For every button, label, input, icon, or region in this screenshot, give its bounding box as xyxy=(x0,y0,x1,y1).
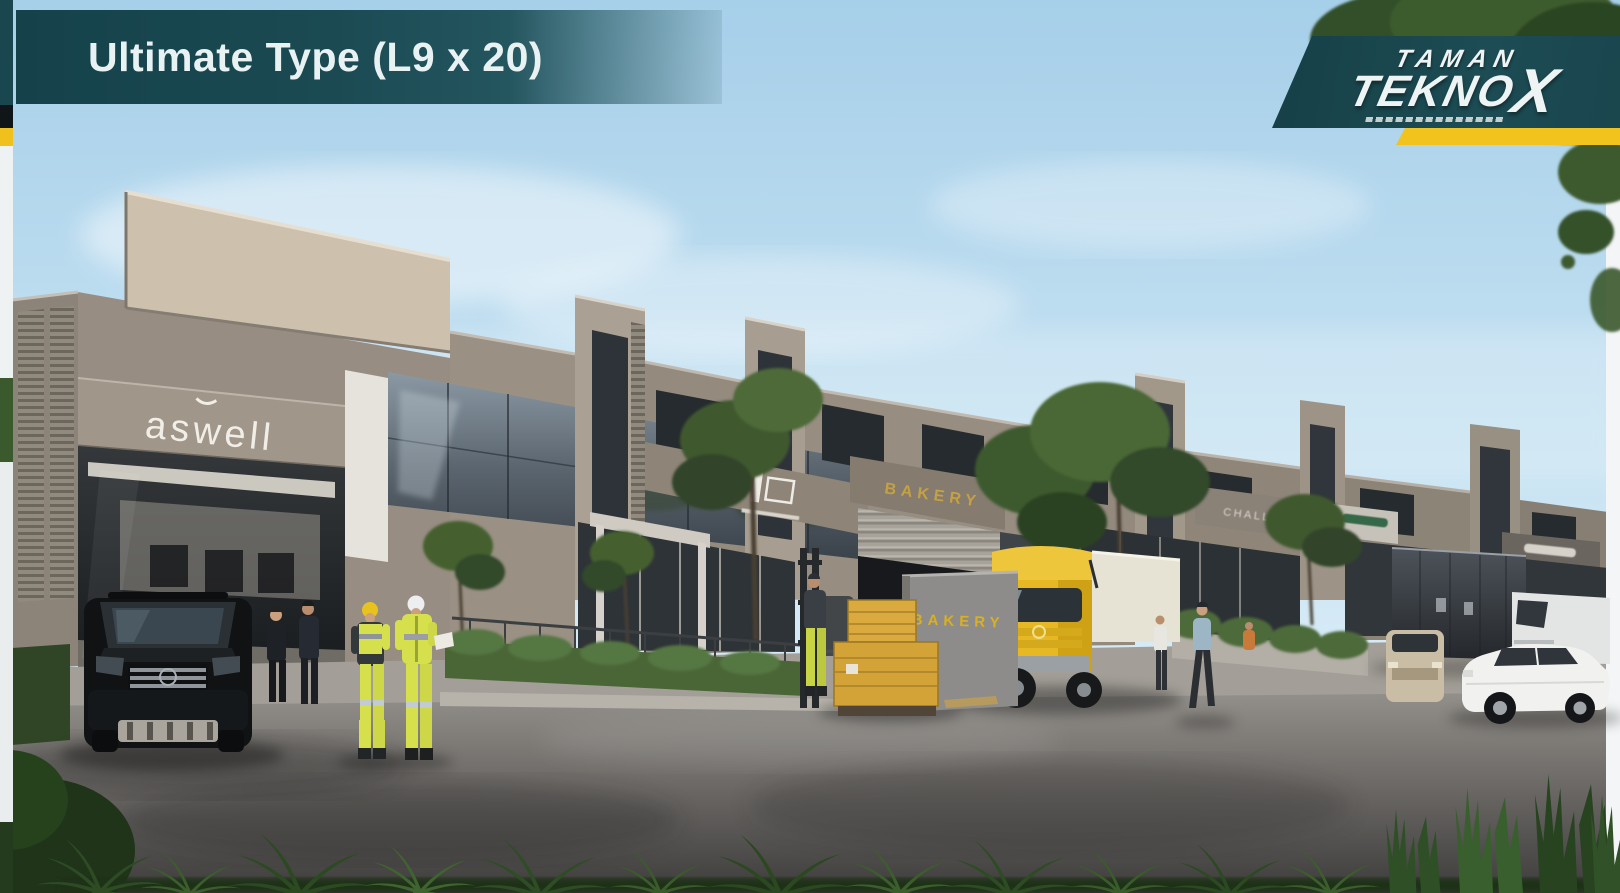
pallet xyxy=(838,706,936,716)
logo-text: TAMAN TEKNOX xyxy=(1325,45,1613,122)
bakery-wall-sign: BAKERY xyxy=(911,611,1004,631)
title-banner: Ultimate Type (L9 x 20) xyxy=(16,10,722,104)
logo-tagline-illegible xyxy=(1365,117,1504,122)
brand-name-bottom: TEKNOX xyxy=(1346,74,1606,110)
truck-trailer xyxy=(1092,552,1180,642)
brand-name-tekno: TEKNO xyxy=(1344,67,1519,116)
corner-pillar xyxy=(345,370,388,562)
slide-title: Ultimate Type (L9 x 20) xyxy=(16,10,722,104)
roof-rack xyxy=(108,592,228,599)
right-edge-strip xyxy=(1606,140,1620,893)
brand-logo: TAMAN TEKNOX xyxy=(1270,36,1620,148)
presentation-slide: aswell BAKERY CHALLDEN xyxy=(0,0,1620,893)
car-beige xyxy=(1386,630,1444,702)
logo-yellow-ribbon xyxy=(1396,128,1620,145)
left-hedge xyxy=(12,644,70,745)
left-edge-strip xyxy=(0,0,13,893)
suv-black xyxy=(84,592,252,752)
